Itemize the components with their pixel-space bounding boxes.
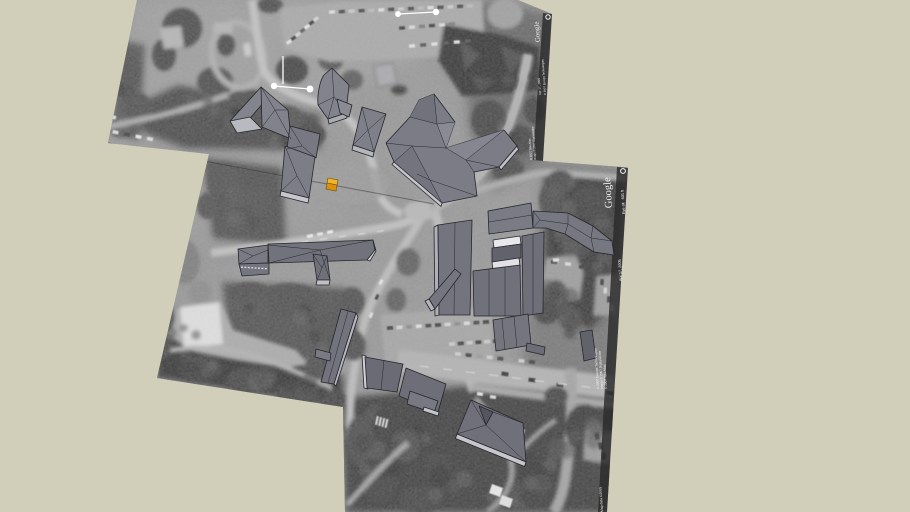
svg-text:Google: Google	[602, 177, 615, 209]
svg-text:Google: Google	[533, 21, 542, 42]
